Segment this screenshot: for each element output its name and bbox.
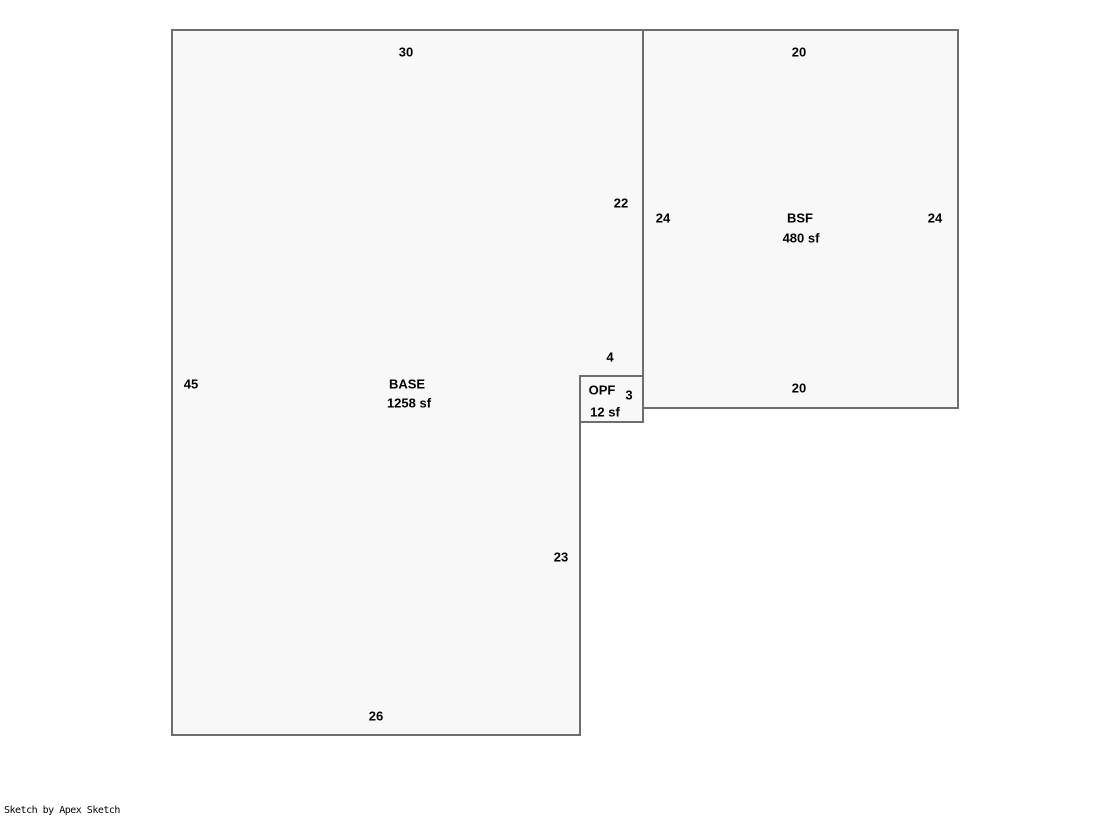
dimension-base-step: 4 (606, 350, 614, 365)
dimension-base-right-upper: 22 (614, 196, 628, 211)
dimension-bsf-top: 20 (792, 45, 806, 60)
floor-plan-sketch: BASE1258 sfBSF480 sfOPF12 sf304522423262… (0, 0, 1119, 821)
dimension-base-top: 30 (399, 45, 413, 60)
bsf-area-label: BSF (787, 211, 813, 226)
base-area-label: BASE (389, 377, 425, 392)
dimension-bsf-bottom: 20 (792, 381, 806, 396)
dimension-base-right-lower: 23 (554, 550, 568, 565)
base-area-sf-label: 1258 sf (387, 396, 432, 411)
dimension-base-bottom: 26 (369, 709, 383, 724)
apex-sketch-credit: Sketch by Apex Sketch (4, 805, 120, 816)
bsf-area-sf-label: 480 sf (783, 231, 821, 246)
opf-area-label: OPF (589, 383, 616, 398)
dimension-opf-right: 3 (625, 388, 632, 403)
sketch-canvas: BASE1258 sfBSF480 sfOPF12 sf304522423262… (0, 0, 1119, 821)
dimension-bsf-right: 24 (928, 211, 943, 226)
dimension-bsf-left: 24 (656, 211, 671, 226)
dimension-base-left: 45 (184, 377, 198, 392)
opf-area-sf-label: 12 sf (590, 405, 620, 420)
